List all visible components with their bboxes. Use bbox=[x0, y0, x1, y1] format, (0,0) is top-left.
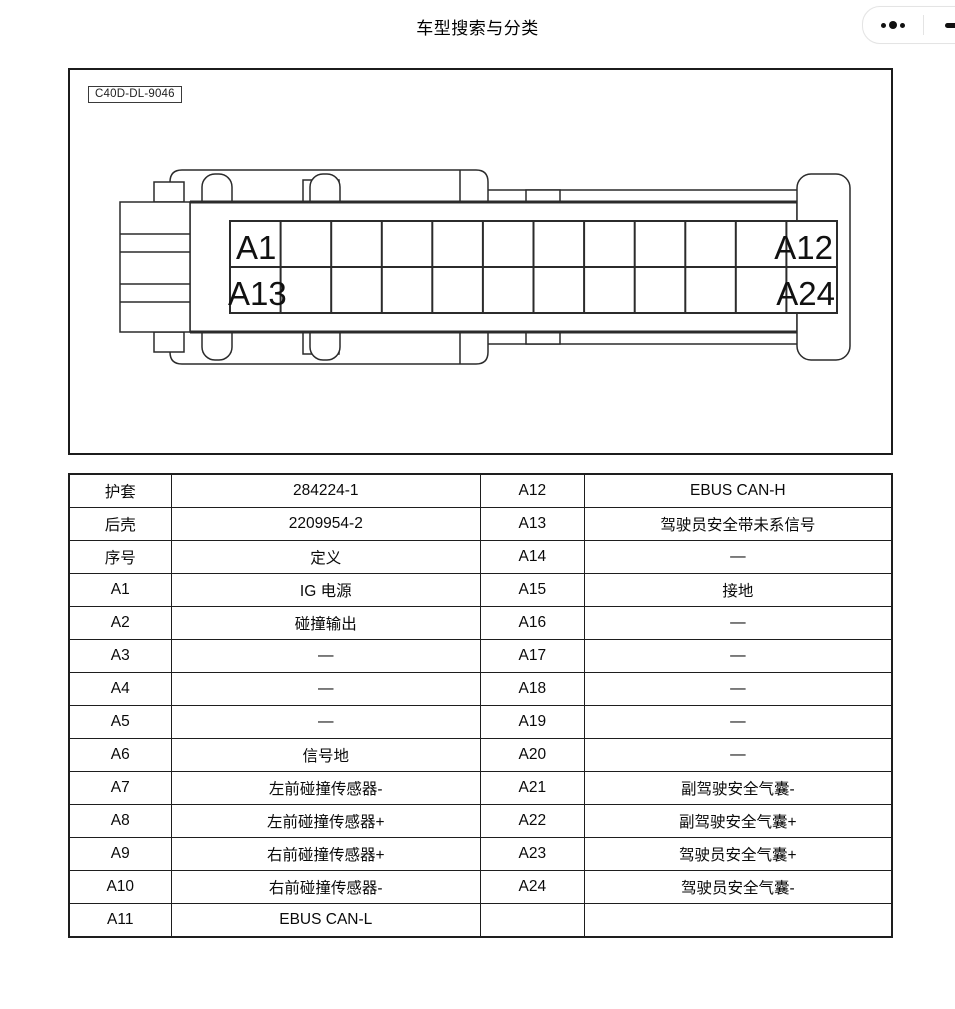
pin-definition-cell: — bbox=[584, 706, 892, 739]
pin-label-cell: 护套 bbox=[69, 474, 171, 508]
table-row: A4 — A18 — bbox=[69, 673, 892, 706]
pin-table-body: 护套 284224-1 A12 EBUS CAN-H 后壳 2209954-2 … bbox=[69, 474, 892, 937]
page-title: 车型搜索与分类 bbox=[0, 14, 955, 39]
pin-label-cell: A21 bbox=[480, 772, 584, 805]
pin-label-cell: A19 bbox=[480, 706, 584, 739]
page: 车型搜索与分类 bbox=[0, 0, 955, 1009]
pin-definition-cell bbox=[584, 904, 892, 938]
pin-definition-cell: 驾驶员安全带未系信号 bbox=[584, 508, 892, 541]
pin-definition-cell: 定义 bbox=[171, 541, 480, 574]
table-row: A5 — A19 — bbox=[69, 706, 892, 739]
table-row: A1 IG 电源 A15 接地 bbox=[69, 574, 892, 607]
pin-definition-cell: 信号地 bbox=[171, 739, 480, 772]
table-row: 护套 284224-1 A12 EBUS CAN-H bbox=[69, 474, 892, 508]
pin-label-cell: A7 bbox=[69, 772, 171, 805]
pin-definition-cell: IG 电源 bbox=[171, 574, 480, 607]
pin-definition-cell: 副驾驶安全气囊+ bbox=[584, 805, 892, 838]
pin-label-cell: A13 bbox=[480, 508, 584, 541]
table-row: A11 EBUS CAN-L bbox=[69, 904, 892, 938]
table-row: A8 左前碰撞传感器+ A22 副驾驶安全气囊+ bbox=[69, 805, 892, 838]
pin-label-cell: A24 bbox=[480, 871, 584, 904]
minimize-button[interactable] bbox=[924, 7, 955, 43]
pin-label-cell: A2 bbox=[69, 607, 171, 640]
pin-label-cell: A14 bbox=[480, 541, 584, 574]
connector-diagram-panel[interactable]: A1 A12 A13 A24 C40D-DL-9046 bbox=[68, 68, 893, 455]
pin-definition-cell: — bbox=[171, 640, 480, 673]
pin-definition-cell: — bbox=[584, 739, 892, 772]
pin-label-cell: A15 bbox=[480, 574, 584, 607]
nav-bar: 车型搜索与分类 bbox=[0, 0, 955, 48]
bottom-step-tab bbox=[526, 332, 560, 344]
pin-label-cell bbox=[480, 904, 584, 938]
pin-definition-cell: 副驾驶安全气囊- bbox=[584, 772, 892, 805]
pin-label-cell: 序号 bbox=[69, 541, 171, 574]
pin-label-cell: A9 bbox=[69, 838, 171, 871]
ellipsis-icon bbox=[881, 21, 905, 29]
pin-label-cell: A3 bbox=[69, 640, 171, 673]
table-row: A3 — A17 — bbox=[69, 640, 892, 673]
pin-label-cell: A4 bbox=[69, 673, 171, 706]
pin-label-cell: A6 bbox=[69, 739, 171, 772]
pin-definition-cell: 2209954-2 bbox=[171, 508, 480, 541]
pin-label-cell: A23 bbox=[480, 838, 584, 871]
pin-definition-table: 护套 284224-1 A12 EBUS CAN-H 后壳 2209954-2 … bbox=[68, 473, 893, 938]
pin-label-cell: A16 bbox=[480, 607, 584, 640]
pin-definition-cell: — bbox=[584, 607, 892, 640]
pin-definition-cell: 碰撞输出 bbox=[171, 607, 480, 640]
pin-label-cell: A1 bbox=[69, 574, 171, 607]
pin-definition-cell: 接地 bbox=[584, 574, 892, 607]
pin-label-cell: A5 bbox=[69, 706, 171, 739]
pin-label-cell: A22 bbox=[480, 805, 584, 838]
pin-label-a24: A24 bbox=[776, 275, 835, 312]
capsule-menu bbox=[862, 6, 955, 44]
table-row: A9 右前碰撞传感器+ A23 驾驶员安全气囊+ bbox=[69, 838, 892, 871]
pin-label-a13: A13 bbox=[228, 275, 287, 312]
connector-drawing: A1 A12 A13 A24 bbox=[70, 70, 891, 453]
pin-definition-cell: — bbox=[584, 541, 892, 574]
top-step-tab bbox=[526, 190, 560, 202]
pin-definition-cell: 左前碰撞传感器+ bbox=[171, 805, 480, 838]
table-row: A7 左前碰撞传感器- A21 副驾驶安全气囊- bbox=[69, 772, 892, 805]
pin-label-cell: A11 bbox=[69, 904, 171, 938]
pin-definition-cell: 右前碰撞传感器+ bbox=[171, 838, 480, 871]
table-row: 后壳 2209954-2 A13 驾驶员安全带未系信号 bbox=[69, 508, 892, 541]
pin-label-cell: A20 bbox=[480, 739, 584, 772]
pin-definition-cell: EBUS CAN-L bbox=[171, 904, 480, 938]
pin-definition-cell: 驾驶员安全气囊- bbox=[584, 871, 892, 904]
pin-definition-cell: EBUS CAN-H bbox=[584, 474, 892, 508]
pin-definition-cell: 284224-1 bbox=[171, 474, 480, 508]
table-row: A2 碰撞输出 A16 — bbox=[69, 607, 892, 640]
minimize-icon bbox=[945, 23, 955, 28]
pin-label-cell: A10 bbox=[69, 871, 171, 904]
pin-label-cell: A8 bbox=[69, 805, 171, 838]
part-number-label: C40D-DL-9046 bbox=[88, 86, 182, 103]
pin-definition-cell: — bbox=[171, 673, 480, 706]
wire-entry-block bbox=[120, 202, 190, 332]
pin-definition-cell: — bbox=[171, 706, 480, 739]
pin-label-cell: 后壳 bbox=[69, 508, 171, 541]
pin-definition-cell: 驾驶员安全气囊+ bbox=[584, 838, 892, 871]
pin-label-cell: A17 bbox=[480, 640, 584, 673]
pin-label-a1: A1 bbox=[236, 229, 276, 266]
pin-definition-cell: — bbox=[584, 640, 892, 673]
pin-definition-cell: — bbox=[584, 673, 892, 706]
pin-grid bbox=[230, 221, 837, 313]
more-button[interactable] bbox=[863, 7, 923, 43]
pin-label-cell: A12 bbox=[480, 474, 584, 508]
table-row: 序号 定义 A14 — bbox=[69, 541, 892, 574]
pin-definition-cell: 右前碰撞传感器- bbox=[171, 871, 480, 904]
table-row: A10 右前碰撞传感器- A24 驾驶员安全气囊- bbox=[69, 871, 892, 904]
pin-definition-cell: 左前碰撞传感器- bbox=[171, 772, 480, 805]
table-row: A6 信号地 A20 — bbox=[69, 739, 892, 772]
pin-label-cell: A18 bbox=[480, 673, 584, 706]
pin-label-a12: A12 bbox=[774, 229, 833, 266]
